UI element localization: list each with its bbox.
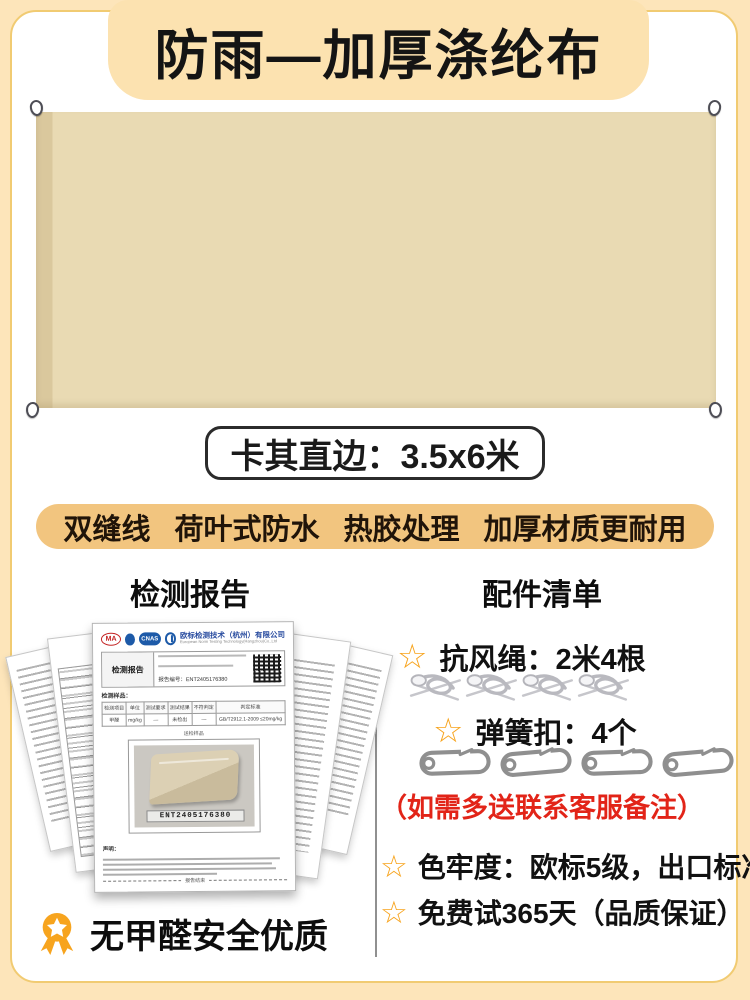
test-result-table: 检测项目 单位 测试要求 测试结果 不符判定 判定标准 甲醛 mg/kg — 未… <box>102 700 286 727</box>
rope-icons <box>404 668 628 710</box>
feature-item: 荷叶式防水 <box>174 506 319 548</box>
report-end-divider: 报告结束 <box>103 879 287 882</box>
report-number: 报告编号：ENT2405176380 <box>158 675 246 684</box>
sample-code-label: ENT2405176380 <box>146 810 244 823</box>
sample-photo: ENT2405176380 <box>134 744 255 827</box>
bullet-label: 免费试365天（品质保证） <box>418 892 745 932</box>
size-label: 卡其直边：3.5x6米 <box>205 426 545 480</box>
feature-item: 双缝线 <box>63 506 150 548</box>
feature-pill: 双缝线 荷叶式防水 热胶处理 加厚材质更耐用 <box>36 504 714 549</box>
cnas-logo-icon: CNAS <box>139 632 161 645</box>
carabiner-icon <box>496 741 577 784</box>
report-header-table: 检测报告 报告编号：ENT2405176380 <box>101 650 285 688</box>
table-cell: — <box>144 714 168 726</box>
placeholder-line <box>103 857 280 861</box>
rope-icon <box>460 668 520 710</box>
sample-photo-frame: ENT2405176380 <box>128 738 261 833</box>
report-end-label: 报告结束 <box>181 877 209 884</box>
placeholder-line <box>158 665 233 668</box>
carabiner-icons <box>416 744 737 780</box>
quality-badge-text: 无甲醛安全优质 <box>90 909 328 958</box>
placeholder-line <box>103 867 276 871</box>
rope-icon <box>572 668 632 710</box>
rope-icon <box>404 668 464 710</box>
qr-code-icon <box>253 654 281 682</box>
feature-item: 加厚材质更耐用 <box>484 506 687 548</box>
statement-block: 声明： <box>103 836 287 876</box>
table-cell: 未检出 <box>168 714 192 726</box>
star-icon: ☆ <box>380 897 408 928</box>
table-header-cell: 检测项目 <box>102 702 126 714</box>
tarp-swatch <box>36 112 716 408</box>
table-header-cell: 判定标准 <box>216 701 285 714</box>
page-title: 防雨—加厚涤纶布 <box>155 11 603 90</box>
quality-badge-row: 无甲醛安全优质 <box>36 908 328 958</box>
lab-logo-icon <box>164 632 176 645</box>
title-banner: 防雨—加厚涤纶布 <box>108 0 649 100</box>
star-icon: ☆ <box>380 851 408 882</box>
table-cell: 甲醛 <box>102 714 126 726</box>
bullet-free-trial: ☆ 免费试365天（品质保证） <box>380 892 745 932</box>
certificate-stack: MA CNAS 欧标检测技术（杭州）有限公司 European Norm Tes… <box>25 618 373 910</box>
table-cell: — <box>192 713 216 725</box>
table-header-cell: 不符判定 <box>192 701 216 713</box>
table-header-cell: 测试要求 <box>144 702 168 714</box>
placeholder-line <box>158 655 246 658</box>
cma-logo-icon: MA <box>101 633 121 646</box>
statement-label: 声明： <box>103 847 120 853</box>
product-detail-image: 防雨—加厚涤纶布 卡其直边：3.5x6米 双缝线 荷叶式防水 热胶处理 加厚材质… <box>0 0 750 1000</box>
medal-icon <box>36 908 78 958</box>
report-info-rows: 报告编号：ENT2405176380 <box>154 652 250 687</box>
fabric-sample <box>149 749 239 805</box>
table-cell: GB/T2912.1-2009 ≤20mg/kg <box>216 713 285 726</box>
rope-icon <box>516 668 576 710</box>
report-doc-title: 检测报告 <box>102 652 154 686</box>
certificate-main-page: MA CNAS 欧标检测技术（杭州）有限公司 European Norm Tes… <box>92 621 296 893</box>
sample-section-label: 检测样品： <box>101 689 285 700</box>
section-title-report: 检测报告 <box>80 570 300 614</box>
table-header-cell: 测试结果 <box>168 702 192 714</box>
placeholder-line <box>103 873 217 876</box>
section-title-accessories: 配件清单 <box>432 570 652 614</box>
column-divider <box>375 704 377 957</box>
lab-company-name: 欧标检测技术（杭州）有限公司 European Norm Testing Tec… <box>180 631 285 645</box>
carabiner-icon <box>577 743 656 782</box>
table-cell: mg/kg <box>126 714 144 726</box>
carabiner-icon <box>658 741 739 784</box>
ilac-logo-icon <box>125 633 135 645</box>
customer-service-note: （如需多送联系客服备注） <box>380 786 704 825</box>
placeholder-line <box>103 862 272 865</box>
feature-item: 热胶处理 <box>344 506 460 548</box>
table-header-cell: 单位 <box>126 702 144 714</box>
sample-photo-caption: 送检样品 <box>102 729 286 738</box>
carabiner-icon <box>415 743 494 782</box>
certification-logos: MA CNAS 欧标检测技术（杭州）有限公司 European Norm Tes… <box>101 629 285 648</box>
bullet-color-fastness: ☆ 色牢度：欧标5级，出口标准 <box>380 846 750 886</box>
bullet-label: 色牢度：欧标5级，出口标准 <box>418 846 750 886</box>
